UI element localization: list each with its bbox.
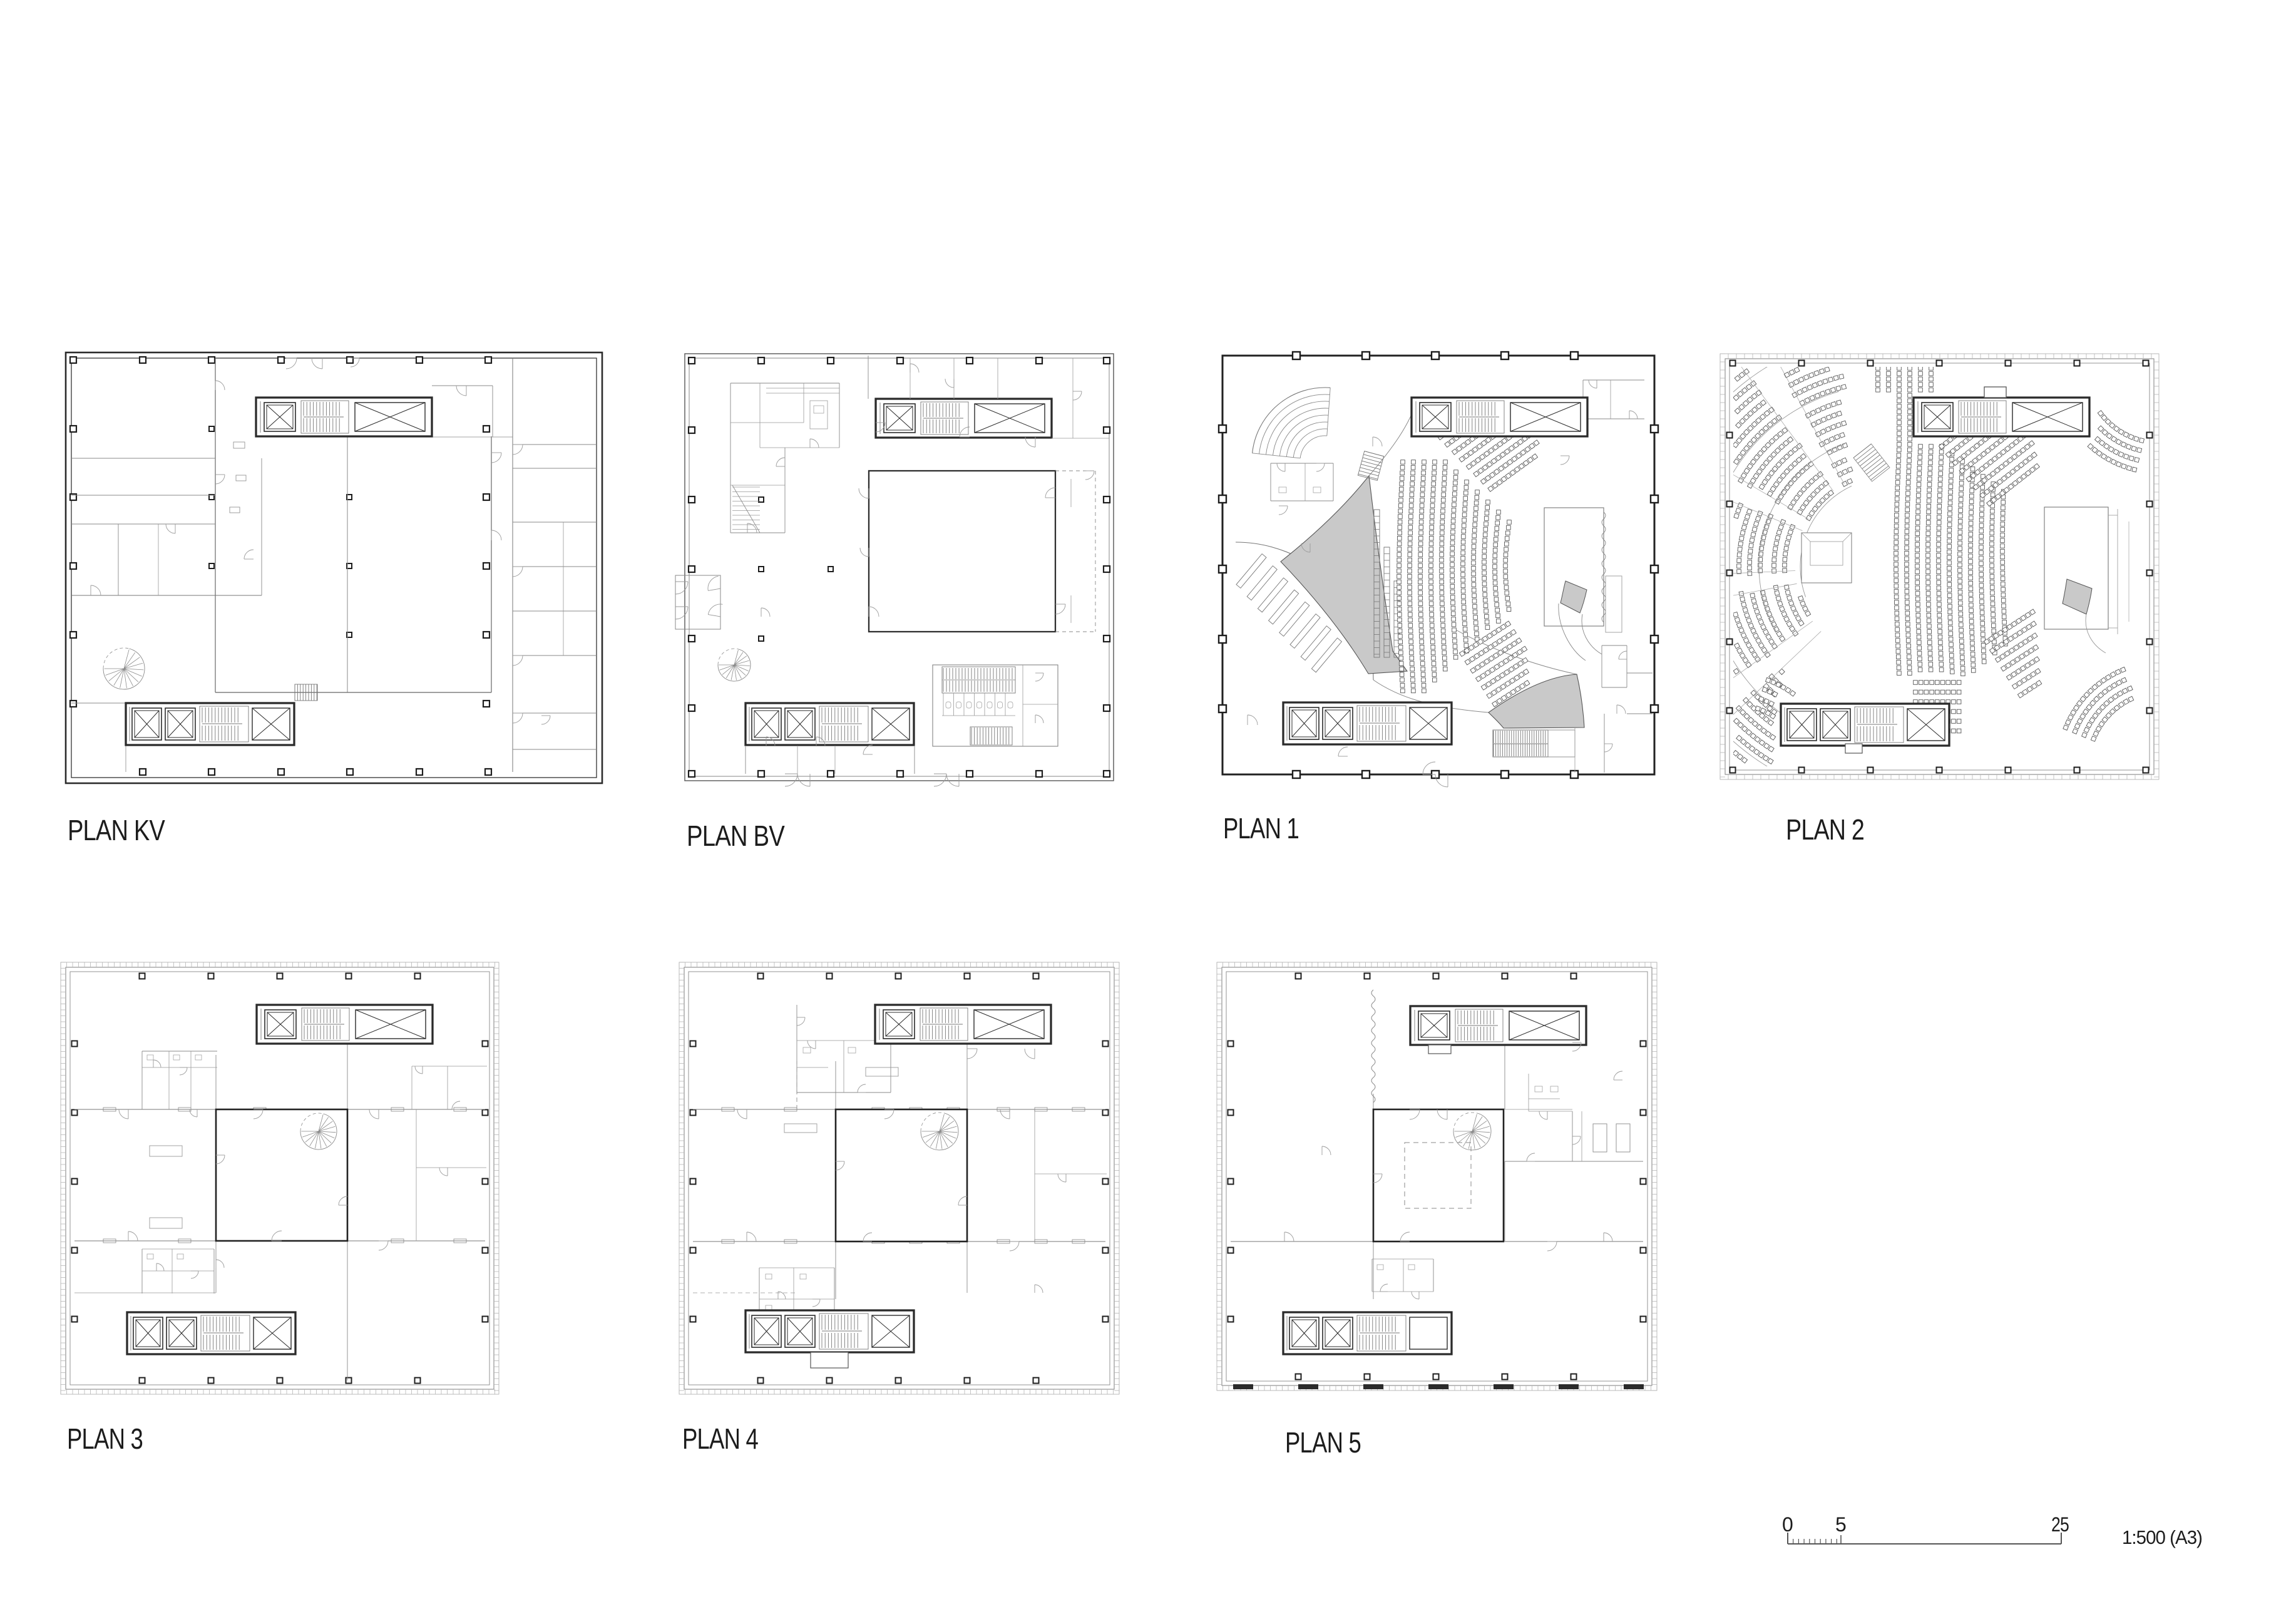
svg-text:PLAN BV: PLAN BV — [687, 820, 785, 852]
svg-text:PLAN 2: PLAN 2 — [1786, 813, 1864, 846]
svg-text:1:500 (A3): 1:500 (A3) — [2122, 1526, 2202, 1548]
svg-text:25: 25 — [2051, 1513, 2069, 1536]
svg-text:PLAN 4: PLAN 4 — [682, 1422, 758, 1455]
svg-text:5: 5 — [1835, 1513, 1846, 1536]
svg-text:PLAN 1: PLAN 1 — [1223, 812, 1299, 845]
svg-text:PLAN KV: PLAN KV — [68, 814, 165, 846]
svg-text:PLAN 3: PLAN 3 — [67, 1422, 143, 1455]
svg-text:0: 0 — [1782, 1513, 1793, 1536]
svg-text:PLAN 5: PLAN 5 — [1285, 1426, 1361, 1459]
